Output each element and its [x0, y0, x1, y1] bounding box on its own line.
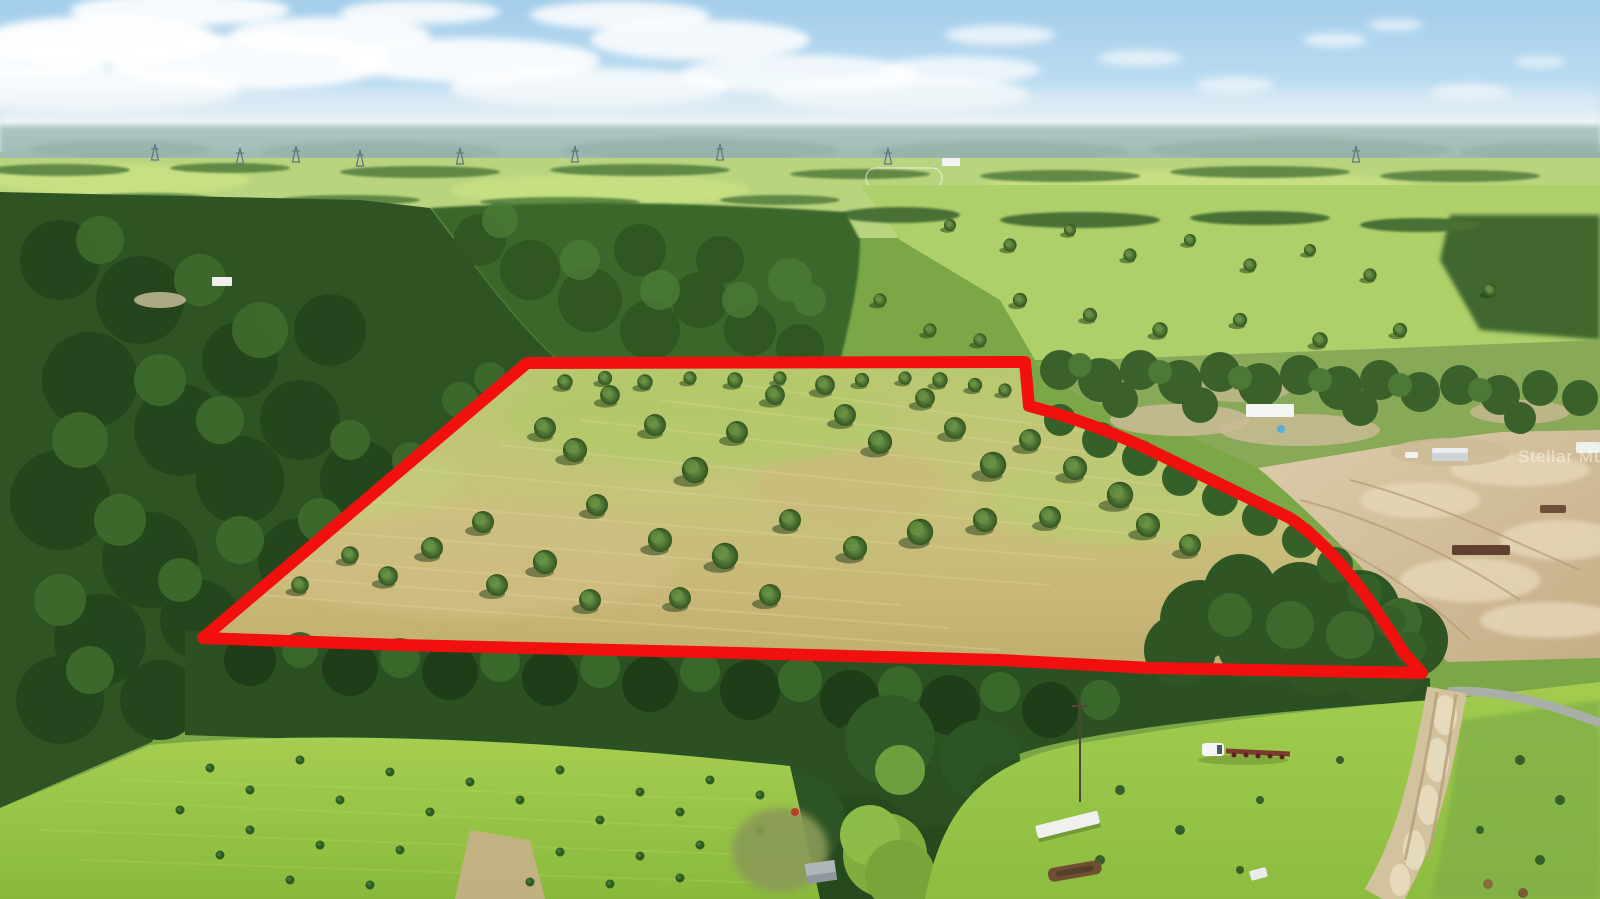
tree-blob: [260, 380, 340, 460]
tree-row: [980, 170, 1140, 182]
tree-row: [1170, 166, 1350, 178]
tree-blob: [1228, 366, 1252, 390]
sapling: [516, 796, 525, 805]
cloud: [340, 0, 500, 24]
stellar-mls-watermark: Stellar MLS: [1518, 447, 1600, 466]
sand-patch: [1400, 558, 1540, 602]
tree-blob: [1266, 601, 1314, 649]
sapling: [176, 806, 185, 815]
sapling: [756, 791, 765, 800]
tree-blob: [1080, 680, 1120, 720]
tree-blob: [94, 494, 146, 546]
white-car: [1405, 452, 1418, 458]
tree-blob: [1504, 402, 1536, 434]
tree-blob: [482, 202, 518, 238]
sapling: [246, 786, 255, 795]
neighbor-house: [212, 277, 232, 286]
tree-blob: [1468, 378, 1492, 402]
shrub: [1336, 756, 1344, 764]
tree-blob: [1522, 370, 1558, 406]
sapling: [366, 881, 375, 890]
cloud: [1514, 56, 1566, 68]
tree-row: [1360, 218, 1480, 232]
tree-blob: [1102, 382, 1138, 418]
hay-bale: [1518, 888, 1528, 898]
tree-blob: [330, 420, 370, 460]
equipment-container: [1540, 505, 1566, 513]
shrub: [1555, 795, 1565, 805]
tree-blob: [640, 270, 680, 310]
sapling: [676, 808, 685, 817]
bottom-left-field: [0, 738, 820, 899]
cloud: [1367, 19, 1423, 31]
sapling: [296, 756, 305, 765]
sapling: [556, 766, 565, 775]
tree-row: [790, 169, 930, 179]
trailer-wheel: [1256, 754, 1261, 759]
equipment-container: [1452, 545, 1510, 555]
tree-row: [1190, 211, 1330, 225]
tree-blob: [1342, 390, 1378, 426]
sapling: [396, 846, 405, 855]
tree-row: [1380, 170, 1540, 182]
sapling: [596, 816, 605, 825]
sapling: [336, 796, 345, 805]
tree-blob: [158, 558, 202, 602]
trailer-wheel: [1244, 753, 1249, 758]
tree-blob: [722, 282, 758, 318]
tree-blob: [1144, 614, 1216, 686]
shrub: [1476, 826, 1484, 834]
sapling: [636, 788, 645, 797]
cloud: [1303, 33, 1367, 47]
white-roof-building: [1246, 404, 1294, 417]
field-ground: [0, 738, 820, 899]
distant-barn: [942, 158, 960, 166]
shrub: [1236, 866, 1244, 874]
tree-blob: [76, 216, 124, 264]
tree-blob: [778, 658, 822, 702]
tree-blob: [768, 258, 812, 302]
tree-blob: [1068, 353, 1092, 377]
truck-windshield: [1217, 745, 1222, 754]
tree-blob: [1326, 611, 1374, 659]
sunlit-tree: [875, 745, 925, 795]
tree-row: [720, 195, 840, 205]
trailer-wheel: [1280, 755, 1285, 760]
tree-blob: [52, 412, 108, 468]
cloud: [880, 56, 1040, 84]
sapling: [636, 852, 645, 861]
tree-blob: [1308, 368, 1332, 392]
tree-blob: [1208, 593, 1252, 637]
blue-pool: [1277, 425, 1285, 433]
sapling: [426, 808, 435, 817]
tree-blob: [620, 300, 680, 360]
dirt-driveway: [134, 292, 186, 308]
sapling: [466, 778, 475, 787]
tree-blob: [134, 354, 186, 406]
sapling: [526, 878, 535, 887]
sapling: [606, 880, 615, 889]
tree-blob: [500, 240, 560, 300]
tree-row: [340, 166, 500, 178]
cloud: [945, 25, 1055, 45]
gray-shed: [805, 860, 837, 884]
tree-blob: [42, 332, 138, 428]
tree-blob: [10, 450, 110, 550]
aerial-photo: Stellar MLS: [0, 0, 1600, 899]
tree-row: [170, 163, 290, 173]
sapling: [696, 841, 705, 850]
tree-blob: [1148, 360, 1172, 384]
sapling: [676, 874, 685, 883]
cloud: [1098, 50, 1182, 66]
tree-blob: [216, 516, 264, 564]
red-equipment: [791, 808, 799, 816]
tree-blob: [622, 656, 678, 712]
tree-blob: [196, 436, 284, 524]
tree-blob: [1182, 387, 1218, 423]
cloud: [530, 1, 710, 29]
shrub: [1175, 825, 1185, 835]
scene: Stellar MLS: [0, 0, 1600, 899]
hay-bale: [1483, 879, 1493, 889]
shrub: [1115, 785, 1125, 795]
truck-shadow: [1198, 755, 1288, 765]
tree-blob: [34, 574, 86, 626]
tree-blob: [1022, 682, 1078, 738]
sapling: [316, 841, 325, 850]
sand-patch: [1390, 864, 1410, 896]
tree-blob: [696, 236, 744, 284]
sapling: [386, 768, 395, 777]
sapling: [706, 776, 715, 785]
tree-blob: [232, 302, 288, 358]
tree-blob: [1562, 380, 1598, 416]
shrub: [1256, 796, 1264, 804]
cloud: [1195, 77, 1275, 93]
tree-blob: [66, 646, 114, 694]
sapling: [286, 876, 295, 885]
tree-blob: [560, 240, 600, 280]
trailer-wheel: [1232, 753, 1237, 758]
sapling: [216, 851, 225, 860]
tree-row: [550, 164, 730, 176]
tree-blob: [196, 396, 244, 444]
tree-blob: [980, 672, 1020, 712]
sapling: [556, 848, 565, 857]
tree-row: [840, 207, 960, 223]
sapling: [246, 826, 255, 835]
tree-blob: [522, 650, 578, 706]
trailer-wheel: [1268, 754, 1273, 759]
shrub: [1515, 755, 1525, 765]
shrub: [1535, 855, 1545, 865]
tree-blob: [558, 268, 622, 332]
sapling: [206, 764, 215, 773]
tree-blob: [294, 294, 366, 366]
tree-blob: [1388, 373, 1412, 397]
tree-blob: [720, 660, 780, 720]
rv-trailer-roof: [1432, 448, 1468, 453]
tree-row: [1000, 212, 1160, 228]
tree-blob: [614, 224, 666, 276]
